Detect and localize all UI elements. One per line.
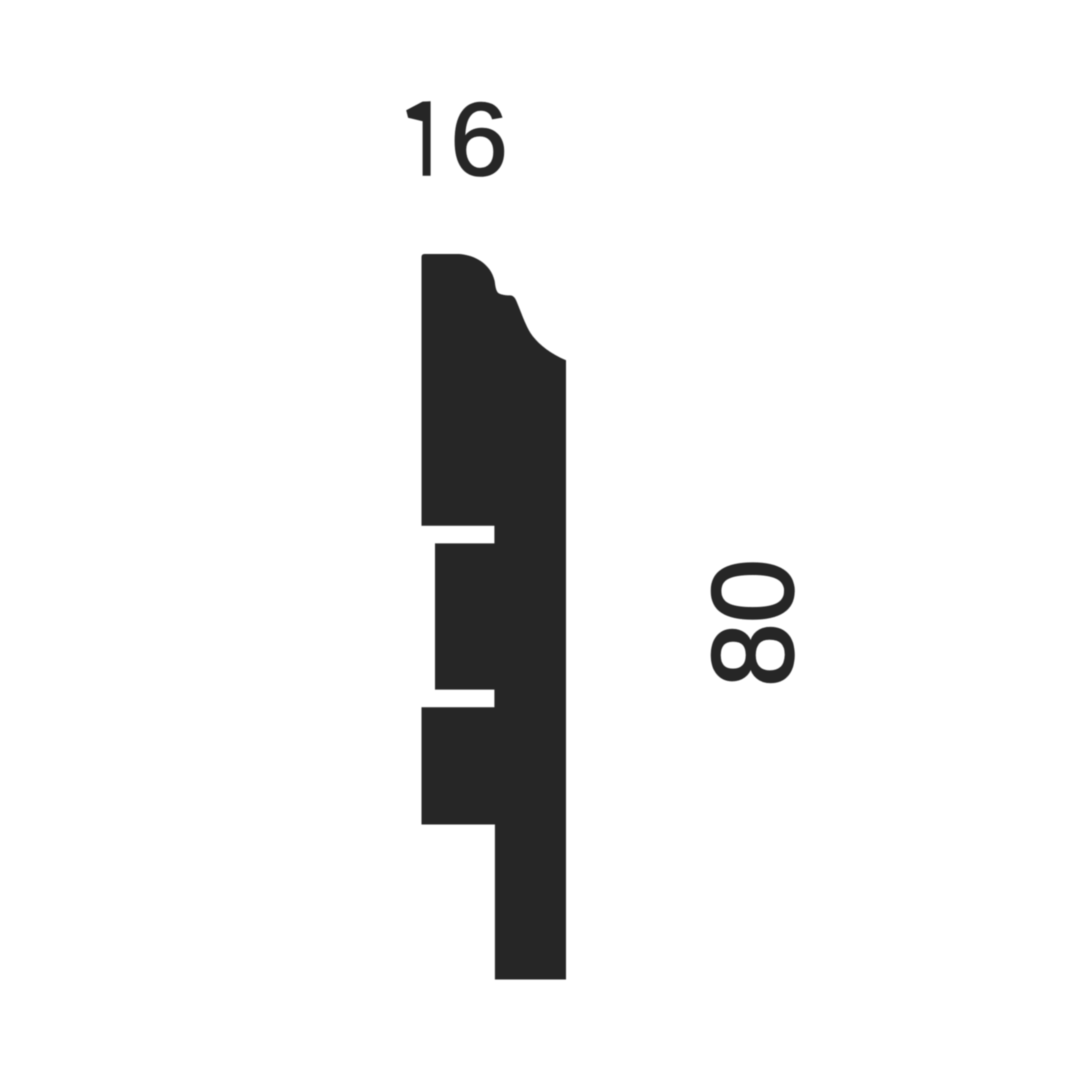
svg-text:6: 6 [450, 82, 508, 198]
svg-text:80: 80 [690, 559, 818, 687]
